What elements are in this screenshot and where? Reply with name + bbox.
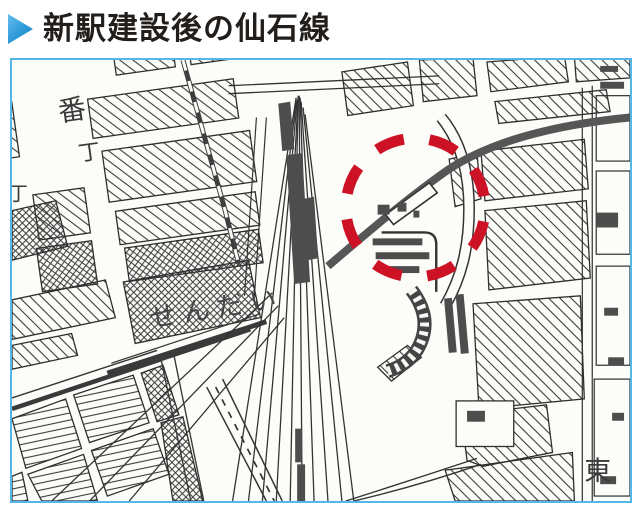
page-title: 新駅建設後の仙石線 [43,6,331,52]
label-cho: 丁 [77,138,102,166]
triangle-right-icon [8,14,33,44]
label-ban: 番 [56,93,88,128]
page: 新駅建設後の仙石線 [0,0,640,512]
map-image: 番 丁 丁 せんだい 東 [12,60,630,501]
building-block-se [456,401,514,447]
label-cho-edge: 丁 [12,184,28,206]
map-frame: 番 丁 丁 せんだい 東 [10,58,632,503]
label-east: 東 [584,456,611,486]
figure-header: 新駅建設後の仙石線 [8,6,331,52]
